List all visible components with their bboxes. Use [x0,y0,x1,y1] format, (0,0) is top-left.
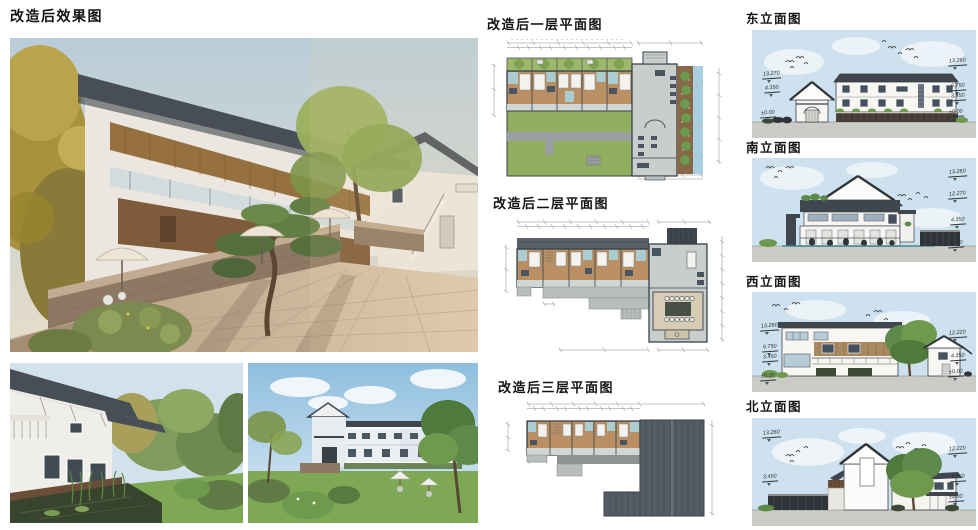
section-title-elevation-south: 南立面图 [746,142,802,155]
level-triangle-icon [767,483,771,486]
section-title-elevation-west: 西立面图 [746,276,802,289]
level-triangle-icon [953,503,957,506]
section-title-plan1: 改造后一层平面图 [487,18,603,31]
level-marker: ±0.00 [948,241,964,252]
level-marker: 12.220 [948,447,967,458]
level-triangle-icon [767,439,771,442]
reception-hall [632,52,677,180]
guest-rooms [517,249,649,287]
terrace [527,455,640,476]
plan-first-floor [487,36,727,184]
section-title-elevation-north: 北立面图 [746,401,802,414]
level-triangle-icon [955,226,959,229]
ground [752,246,976,262]
render-main-image [10,38,478,352]
main-building [762,322,902,378]
level-marker: ±0.00 [948,370,964,381]
level-triangle-icon [769,94,773,97]
level-marker: 12.220 [948,331,967,342]
water-strip [782,245,934,247]
level-marker: 13.260 [948,59,967,70]
level-marker: 13.260 [760,324,779,335]
presentation-board: 改造后效果图 [0,0,978,530]
ground [752,376,976,392]
guest-rooms [527,421,640,455]
level-marker: 4.350 [950,354,966,365]
level-triangle-icon [767,363,771,366]
level-triangle-icon [765,332,769,335]
courtyard-lawn [507,111,632,176]
level-marker: ±0.00 [948,110,964,121]
elevation-south: 13.260 12.270 4.350 ±0.00 [752,158,976,262]
render-pond-image [10,363,243,523]
level-triangle-icon [953,455,957,458]
level-triangle-icon [765,119,769,122]
level-triangle-icon [953,67,957,70]
stone-planter [300,463,340,473]
level-marker: 3.450 [950,94,966,105]
level-triangle-icon [767,80,771,83]
level-triangle-icon [953,178,957,181]
elevation-west: 13.260 6.750 3.450 ±0.00 12.220 4.350 ±0… [752,292,976,392]
level-marker: 3.450 [762,355,778,366]
plan-third-floor [500,396,720,526]
planter-strip [507,58,632,71]
elevation-north: 13.260 3.450 12.220 4.350 ±0.00 [752,418,976,526]
level-triangle-icon [955,362,959,365]
wooden-deck [677,66,703,174]
plan-second-floor [498,214,730,358]
level-marker: 4.350 [764,86,780,97]
level-marker: 13.260 [762,431,781,442]
section-title-plan3: 改造后三层平面图 [498,381,614,394]
ground [752,510,976,526]
guest-rooms [507,71,632,111]
level-triangle-icon [953,249,957,252]
upper-hall [649,228,707,342]
level-triangle-icon [953,118,957,121]
section-title-renders: 改造后效果图 [10,9,103,23]
bush [759,239,777,247]
level-marker: 13.260 [948,170,967,181]
elevation-east: 13.270 4.350 ±0.00 13.260 6.750 3.450 ±0… [752,30,976,138]
render-lawn-image [248,363,478,523]
level-triangle-icon [953,339,957,342]
level-triangle-icon [955,483,959,486]
level-marker: 4.350 [950,475,966,486]
level-triangle-icon [953,200,957,203]
terrace-walkway [517,287,649,319]
level-triangle-icon [765,382,769,385]
section-title-plan2: 改造后二层平面图 [493,197,609,210]
level-marker: 3.450 [762,475,778,486]
meeting-room [653,292,703,330]
water-strip [693,66,703,174]
level-marker: ±0.00 [760,111,776,122]
level-marker: 12.270 [948,192,967,203]
ground [752,122,976,138]
level-marker: 13.270 [762,72,781,83]
level-marker: 4.350 [950,218,966,229]
level-triangle-icon [953,378,957,381]
level-triangle-icon [955,102,959,105]
section-title-elevation-east: 东立面图 [746,13,802,26]
level-marker: ±0.00 [760,374,776,385]
level-marker: ±0.00 [948,495,964,506]
warm-light-overlay [310,38,478,352]
